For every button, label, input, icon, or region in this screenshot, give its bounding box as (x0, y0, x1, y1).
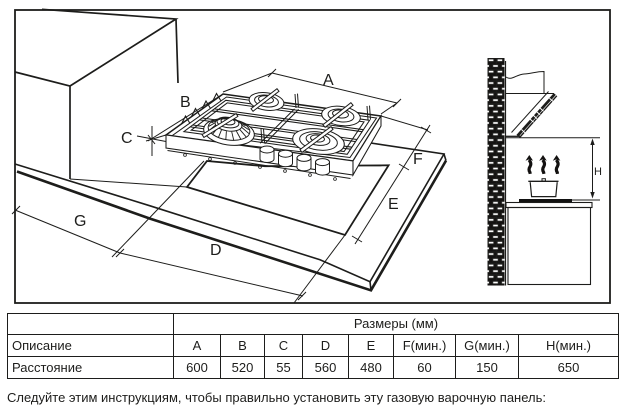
svg-text:C: C (121, 130, 133, 147)
svg-text:B: B (180, 94, 191, 111)
svg-text:G: G (74, 213, 86, 230)
svg-text:F: F (413, 151, 423, 168)
svg-text:A: A (323, 72, 334, 89)
svg-text:D: D (210, 242, 222, 259)
svg-text:H: H (594, 166, 602, 178)
svg-text:E: E (388, 196, 399, 213)
